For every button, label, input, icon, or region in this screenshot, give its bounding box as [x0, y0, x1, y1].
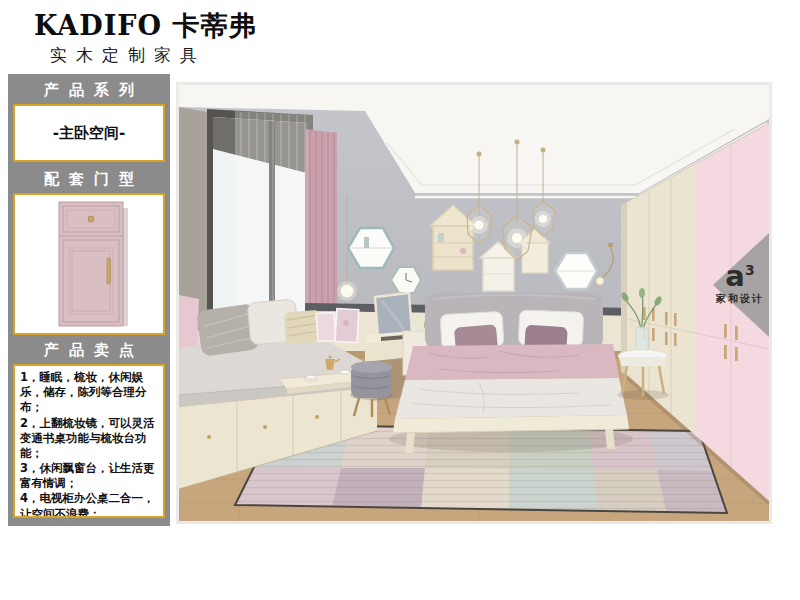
watermark-name: 家和设计	[712, 292, 768, 306]
a3-logo: a3	[712, 263, 768, 289]
series-name: -主卧空间-	[53, 124, 125, 143]
product-series-title: 产品系列	[8, 81, 170, 100]
bedroom-render-photo: a3 家和设计	[176, 82, 772, 524]
selling-point: 3，休闲飘窗台，让生活更富有情调；	[20, 461, 158, 491]
selling-point: 2，上翻梳妆镜，可以灵活变通书桌功能与梳妆台功能；	[20, 416, 158, 462]
watermark-text: a3 家和设计	[712, 263, 768, 306]
door-panel-image	[19, 198, 159, 330]
door-image-box	[13, 193, 165, 335]
selling-point: 4，电视柜办公桌二合一，让空间不浪费；	[20, 491, 158, 518]
drawer-knob-icon	[88, 216, 94, 222]
sidebar: 产品系列 -主卧空间- 配套门型 产品卖点 1，睡眠，梳妆，休闲娱乐，储存，陈列…	[8, 74, 170, 526]
brand-title: KADIFO 卡蒂弗	[34, 8, 256, 44]
series-name-box: -主卧空间-	[13, 104, 165, 162]
selling-points-title: 产品卖点	[8, 341, 170, 360]
selling-points-box: 1，睡眠，梳妆，休闲娱乐，储存，陈列等合理分布； 2，上翻梳妆镜，可以灵活变通书…	[13, 364, 165, 518]
door-type-title: 配套门型	[8, 170, 170, 189]
bedroom-scene	[179, 85, 769, 521]
brand-subtitle: 实木定制家具	[46, 44, 206, 67]
poster-page: KADIFO 卡蒂弗 实木定制家具 产品系列 -主卧空间- 配套门型 产品卖点 …	[0, 0, 800, 600]
door-handle-icon	[107, 258, 111, 284]
selling-point: 1，睡眠，梳妆，休闲娱乐，储存，陈列等合理分布；	[20, 370, 158, 416]
designer-watermark: a3 家和设计	[711, 233, 769, 337]
